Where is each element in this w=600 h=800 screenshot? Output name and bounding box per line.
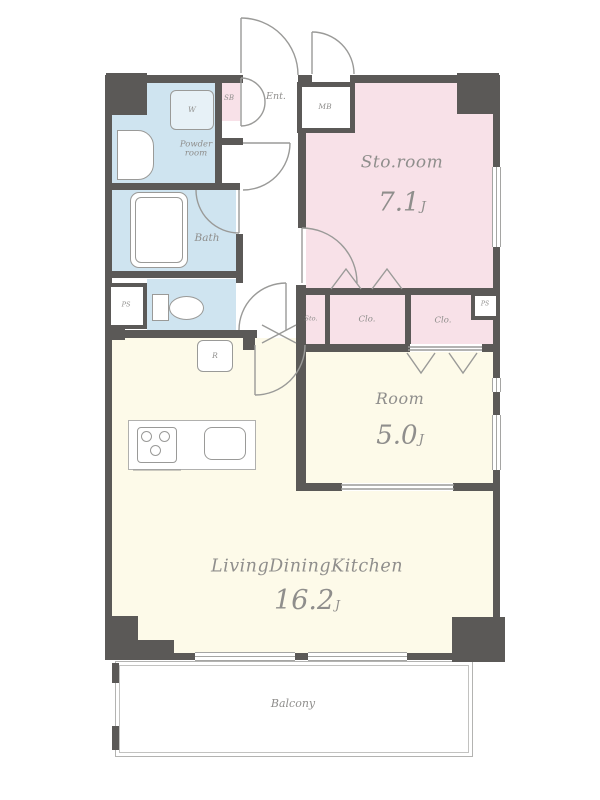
entry-fold-door-arc-1 [241,78,265,102]
closet1-fold-mark-2 [372,269,402,289]
closet2-fold-mark-1 [407,353,435,373]
pipe-space-left-label: PS [122,301,131,308]
closet2-sliding-track [408,347,482,350]
storage-room-door-arc [302,228,357,283]
closet1-label: Clo. [359,315,376,324]
ldk-size: 16.2J [274,586,340,616]
bedroom-size: 5.0J [376,422,424,451]
closet2-label: Clo. [435,316,452,325]
entrance-label: Ent. [266,92,286,102]
powder-room-label: Powder room [180,141,212,160]
closet2-fold-mark-2 [449,353,477,373]
hall-storage-label: Sto. [305,315,318,322]
bath-door-arc [196,190,239,233]
entry-fold-door-arc-2 [241,102,265,126]
refrigerator-label: R [212,352,218,360]
toilet-door-arc [239,283,286,330]
meter-box-label: MB [318,103,331,111]
bedroom-area: 5.0 [376,421,417,451]
room-sliding-door [341,485,454,489]
hall-storage-fold-mark [262,325,296,343]
meter-box-door-arc [312,32,354,74]
ldk-area: 16.2 [274,585,334,616]
shoe-box-label: SB [224,95,234,103]
entrance-door-arc [241,18,298,75]
storage-room-area: 7.1 [378,188,419,218]
balcony-label: Balcony [271,698,315,710]
storage-room-unit: J [421,200,426,215]
hall-ldk-door-arc [255,345,305,395]
pipe-space-right-label: PS [481,302,489,309]
ldk-label: LivingDiningKitchen [211,557,403,576]
storage-room-size: 7.1J [378,189,426,218]
storage-room-label: Sto.room [361,154,444,173]
floor-plan: W SB Ent. MB Powder room Bath PS Sto.roo… [0,0,600,800]
ldk-unit: J [335,598,340,612]
bedroom-label: Room [376,390,424,408]
bedroom-unit: J [419,433,424,448]
powder-room-label-line2: room [180,150,212,159]
door-swing-overlay [0,0,600,800]
bath-label: Bath [195,233,220,245]
washer-label: W [188,106,196,114]
powder-door-arc [243,143,290,190]
